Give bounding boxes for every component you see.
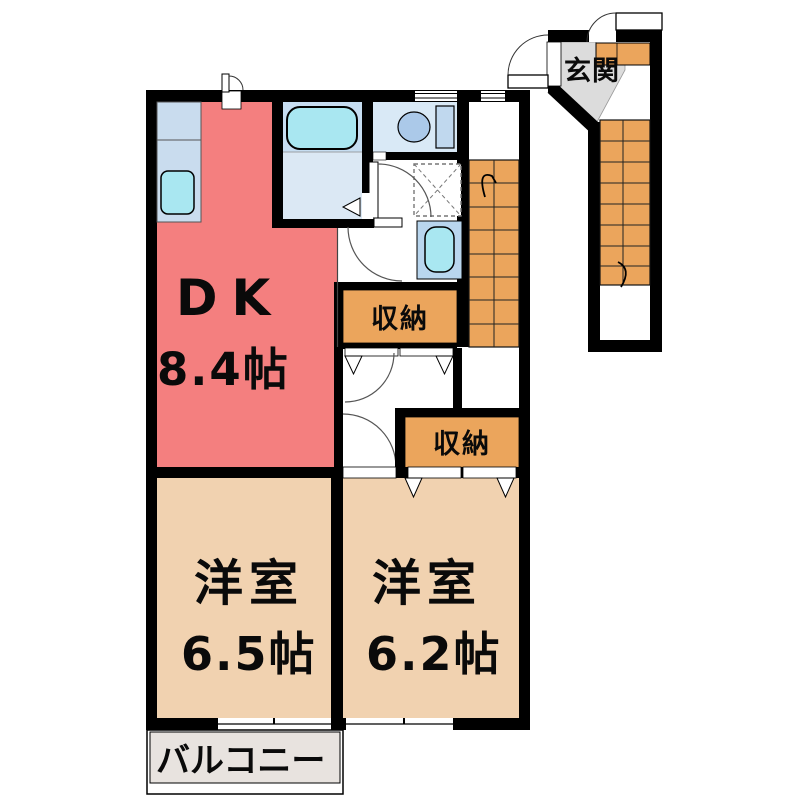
west2-door-leaf bbox=[343, 467, 396, 478]
window-toilet bbox=[415, 91, 457, 101]
west1-label: 洋室 bbox=[194, 555, 304, 612]
balcony-label: バルコニー bbox=[156, 741, 325, 781]
wall-closet1-left bbox=[334, 282, 343, 349]
entrance-door-arc bbox=[508, 35, 548, 75]
west2-size: 6.2帖 bbox=[366, 627, 502, 681]
wall-dk-hall bbox=[334, 348, 343, 468]
wall-bath-left bbox=[272, 102, 283, 228]
inner-staircase bbox=[469, 160, 519, 347]
balcony: バルコニー bbox=[147, 730, 343, 794]
west2-label: 洋室 bbox=[372, 555, 482, 612]
wall-left bbox=[146, 90, 157, 730]
wall-hall-right bbox=[453, 348, 462, 410]
wall-closet2-top bbox=[395, 408, 530, 417]
toilet-room bbox=[373, 102, 457, 152]
dk-top-door bbox=[222, 74, 243, 109]
entrance-door-gap bbox=[547, 42, 561, 86]
toilet-door bbox=[373, 152, 386, 160]
kitchen-counter bbox=[157, 102, 201, 222]
west1-size: 6.5帖 bbox=[181, 627, 317, 681]
wall-room-divider bbox=[331, 467, 343, 730]
closet1-label: 収納 bbox=[371, 303, 429, 335]
bath-door-gap bbox=[362, 193, 373, 219]
kitchen-sink-icon bbox=[161, 171, 194, 214]
entrance-window-gap bbox=[589, 30, 616, 42]
washbasin-icon bbox=[425, 227, 454, 272]
toilet-icon bbox=[398, 112, 430, 142]
entrance-structure: 玄関 bbox=[508, 13, 662, 352]
entrance-label: 玄関 bbox=[564, 55, 620, 87]
dk-size: 8.4帖 bbox=[157, 343, 290, 396]
entrance-door-leaf bbox=[508, 75, 548, 88]
bathroom bbox=[283, 102, 362, 219]
window-west2 bbox=[346, 718, 453, 730]
ext-wall-right bbox=[650, 30, 662, 352]
dk-label: DK bbox=[176, 269, 284, 327]
bathtub-icon bbox=[287, 107, 357, 149]
washroom bbox=[414, 164, 462, 279]
outer-staircase bbox=[600, 120, 650, 287]
wall-top bbox=[146, 90, 530, 102]
entrance-upper-leaf bbox=[616, 13, 662, 30]
ext-wall-stair-left bbox=[588, 122, 600, 352]
window-west1 bbox=[218, 718, 331, 730]
toilet-tank-icon bbox=[436, 106, 454, 148]
hall-door-leaf bbox=[374, 218, 402, 227]
wall-closet1-top bbox=[334, 282, 457, 290]
window-stair-landing bbox=[481, 91, 505, 101]
floorplan: バルコニー bbox=[0, 0, 800, 800]
wall-bath-bottom bbox=[272, 219, 374, 228]
ext-wall-bottom bbox=[588, 340, 662, 352]
closet2-label: 収納 bbox=[433, 428, 491, 460]
